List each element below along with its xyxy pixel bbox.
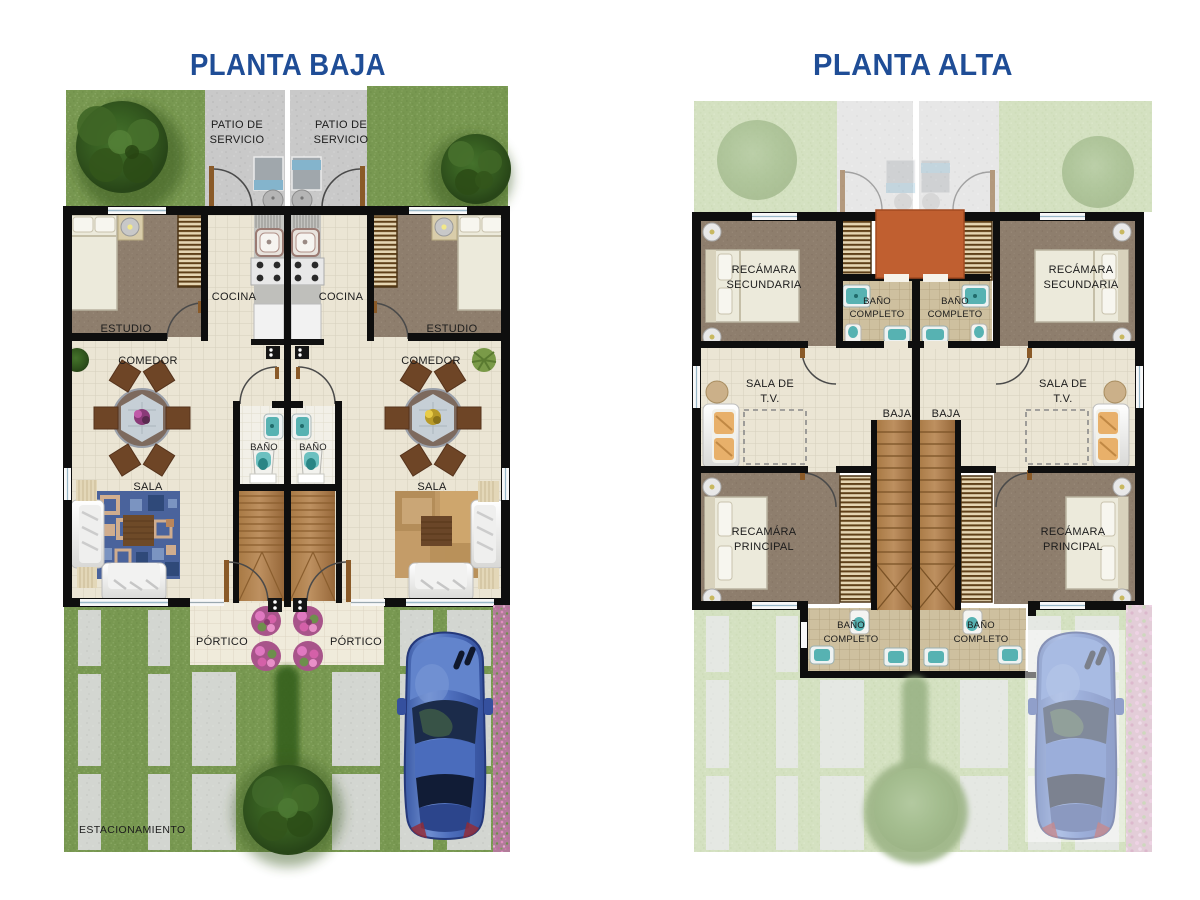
svg-text:COMEDOR: COMEDOR xyxy=(118,355,178,367)
svg-text:BAÑO: BAÑO xyxy=(967,620,995,631)
svg-text:ESTUDIO: ESTUDIO xyxy=(427,323,478,335)
svg-text:SECUNDARIA: SECUNDARIA xyxy=(726,279,801,291)
svg-text:SALA DE: SALA DE xyxy=(1039,378,1087,390)
svg-text:T.V.: T.V. xyxy=(1053,393,1072,405)
svg-text:COMPLETO: COMPLETO xyxy=(954,634,1009,645)
svg-text:SALA DE: SALA DE xyxy=(746,378,794,390)
svg-text:SALA: SALA xyxy=(417,481,447,493)
svg-text:BAJA: BAJA xyxy=(883,408,912,420)
svg-text:T.V.: T.V. xyxy=(760,393,779,405)
svg-text:BAÑO: BAÑO xyxy=(299,442,327,453)
svg-text:PATIO DE: PATIO DE xyxy=(315,119,367,131)
svg-text:PÓRTICO: PÓRTICO xyxy=(330,635,382,648)
svg-text:RECAMÁRA: RECAMÁRA xyxy=(732,525,797,538)
svg-text:BAÑO: BAÑO xyxy=(250,442,278,453)
svg-text:COMPLETO: COMPLETO xyxy=(928,309,983,320)
svg-text:PRINCIPAL: PRINCIPAL xyxy=(1043,541,1103,553)
svg-text:ESTACIONAMIENTO: ESTACIONAMIENTO xyxy=(79,824,186,836)
svg-text:PATIO DE: PATIO DE xyxy=(211,119,263,131)
svg-text:COMPLETO: COMPLETO xyxy=(824,634,879,645)
svg-text:PRINCIPAL: PRINCIPAL xyxy=(734,541,794,553)
svg-text:BAJA: BAJA xyxy=(932,408,961,420)
svg-text:RECÁMARA: RECÁMARA xyxy=(1049,263,1114,276)
svg-text:SALA: SALA xyxy=(133,481,163,493)
svg-text:BAÑO: BAÑO xyxy=(941,296,969,307)
svg-text:BAÑO: BAÑO xyxy=(863,296,891,307)
svg-text:BAÑO: BAÑO xyxy=(837,620,865,631)
svg-text:SECUNDARIA: SECUNDARIA xyxy=(1043,279,1118,291)
svg-text:PLANTA ALTA: PLANTA ALTA xyxy=(813,47,1013,82)
svg-text:PLANTA BAJA: PLANTA BAJA xyxy=(190,47,386,82)
svg-text:ESTUDIO: ESTUDIO xyxy=(101,323,152,335)
svg-text:RECÁMARA: RECÁMARA xyxy=(1041,525,1106,538)
svg-text:PÓRTICO: PÓRTICO xyxy=(196,635,248,648)
svg-text:COMEDOR: COMEDOR xyxy=(401,355,461,367)
svg-text:RECÁMARA: RECÁMARA xyxy=(732,263,797,276)
svg-text:COCINA: COCINA xyxy=(212,291,257,303)
svg-text:SERVICIO: SERVICIO xyxy=(210,134,265,146)
svg-text:SERVICIO: SERVICIO xyxy=(314,134,369,146)
svg-text:COCINA: COCINA xyxy=(319,291,364,303)
svg-text:COMPLETO: COMPLETO xyxy=(850,309,905,320)
